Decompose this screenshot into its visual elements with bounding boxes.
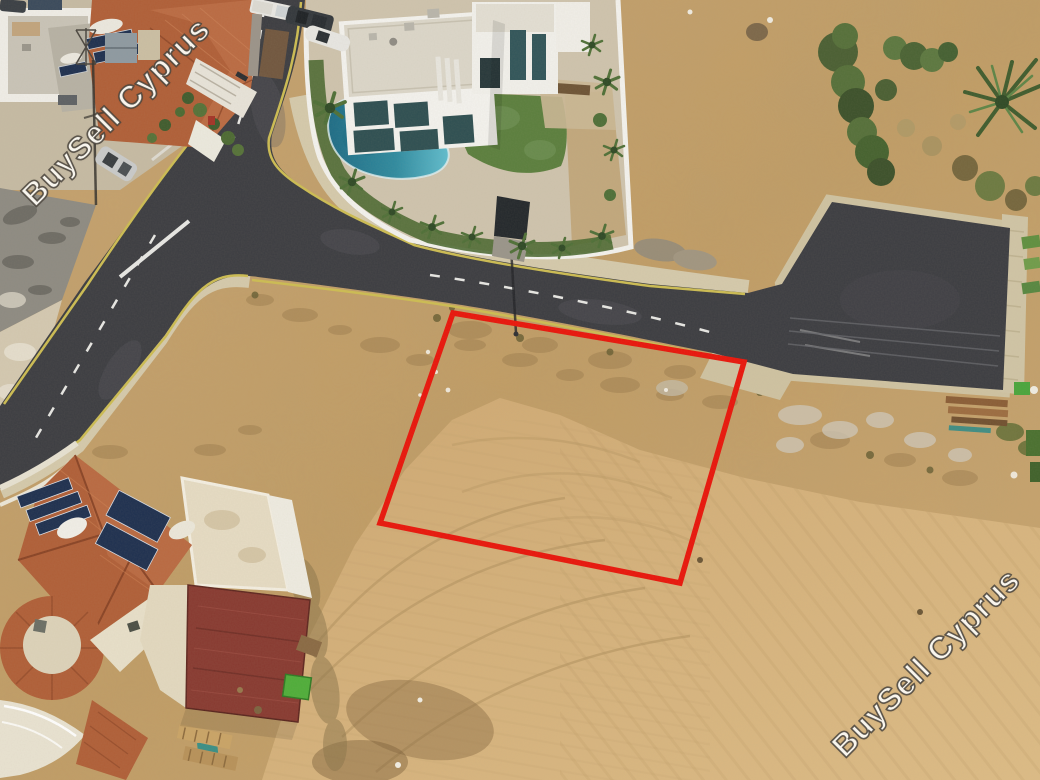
aerial-photo-scene xyxy=(0,0,1040,780)
aerial-photo: BuySell Cyprus BuySell Cyprus xyxy=(0,0,1040,780)
photo-grain xyxy=(0,0,1040,780)
